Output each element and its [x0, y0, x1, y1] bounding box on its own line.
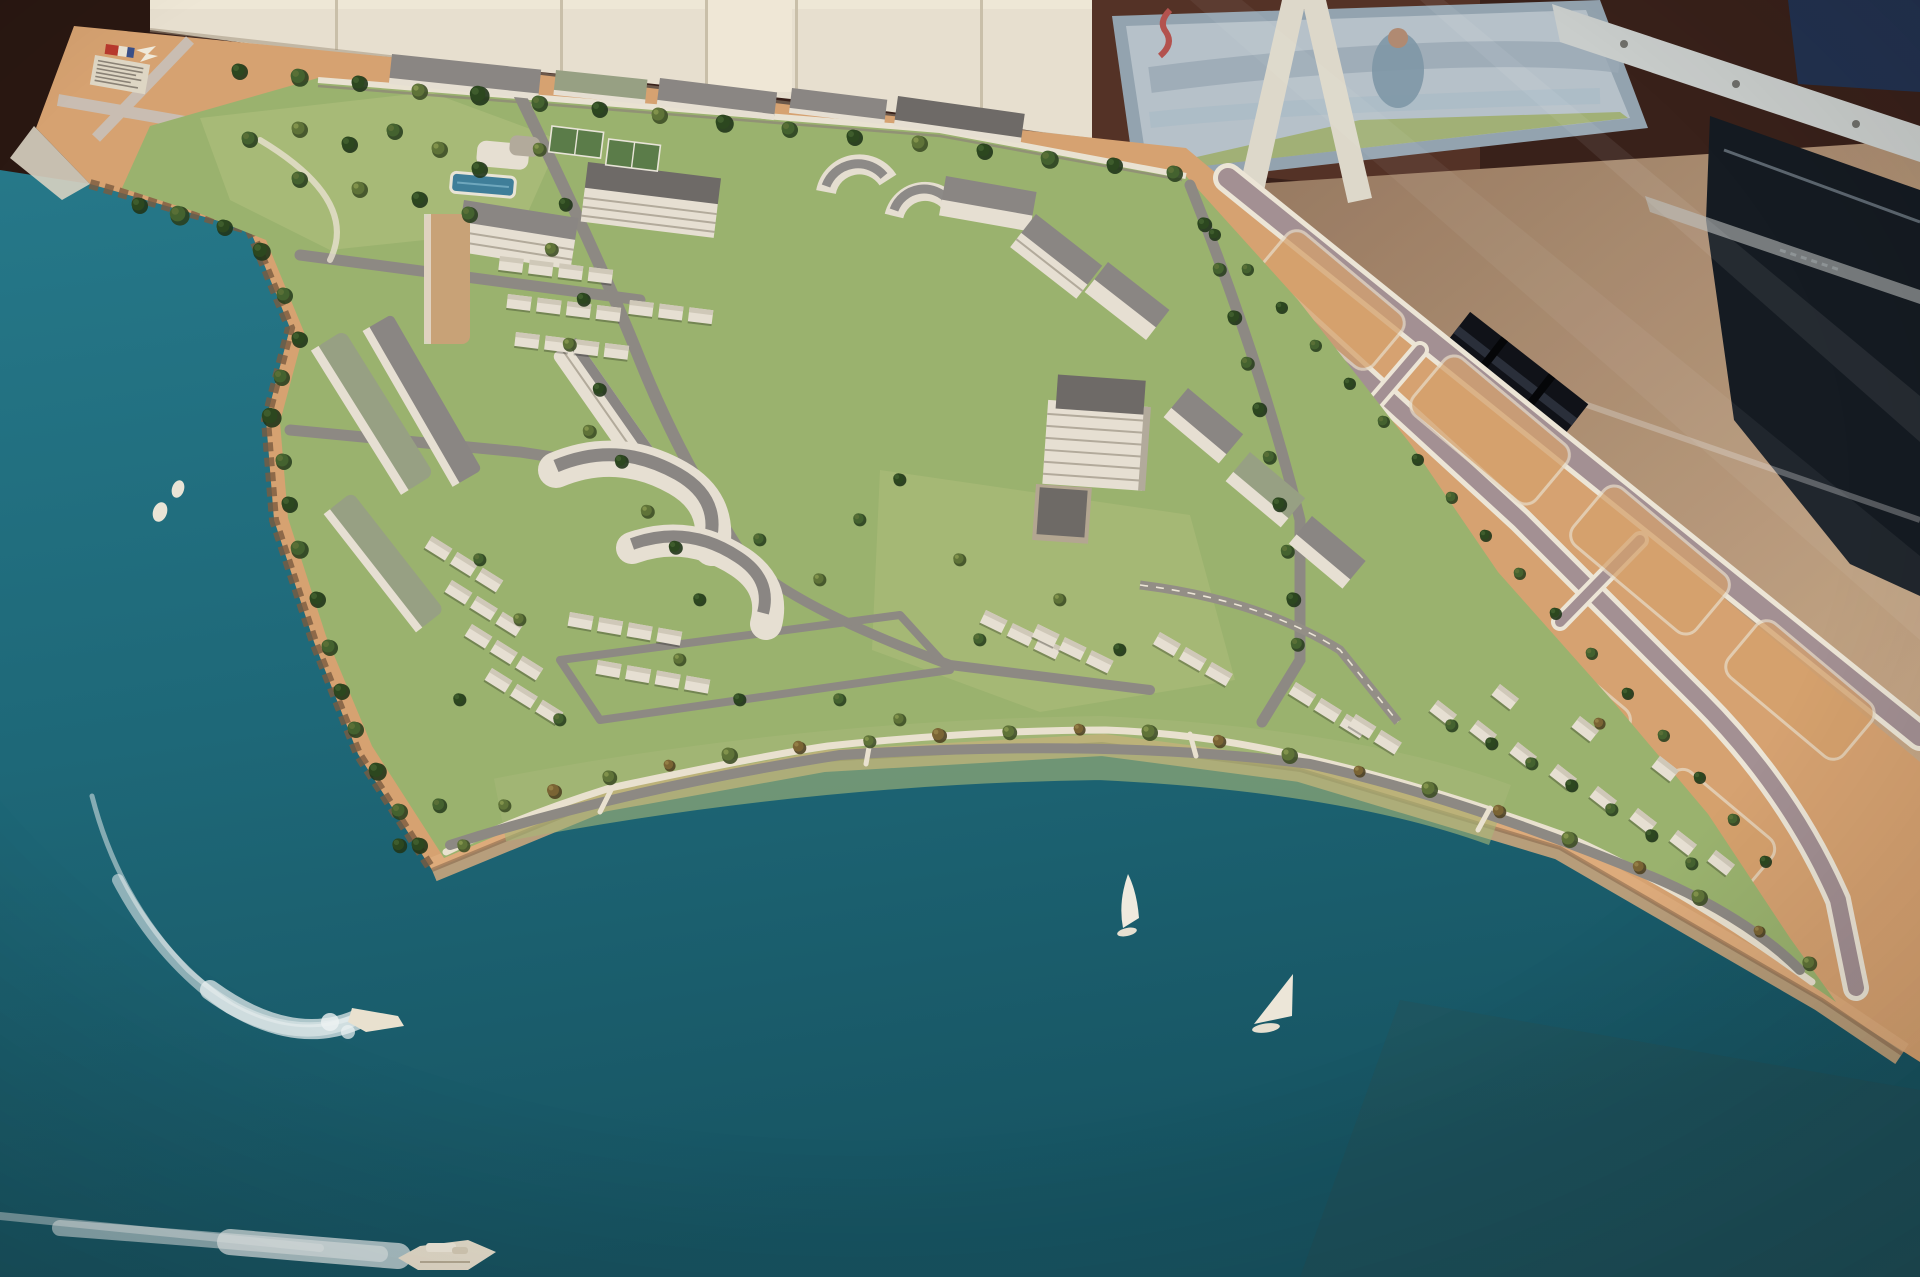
- figure: Photograph of an architectural scale mod…: [0, 0, 1920, 1277]
- scene-canvas: [0, 0, 1920, 1277]
- vignette: [0, 0, 1920, 1277]
- photo-architectural-model: Photograph of an architectural scale mod…: [0, 0, 1920, 1277]
